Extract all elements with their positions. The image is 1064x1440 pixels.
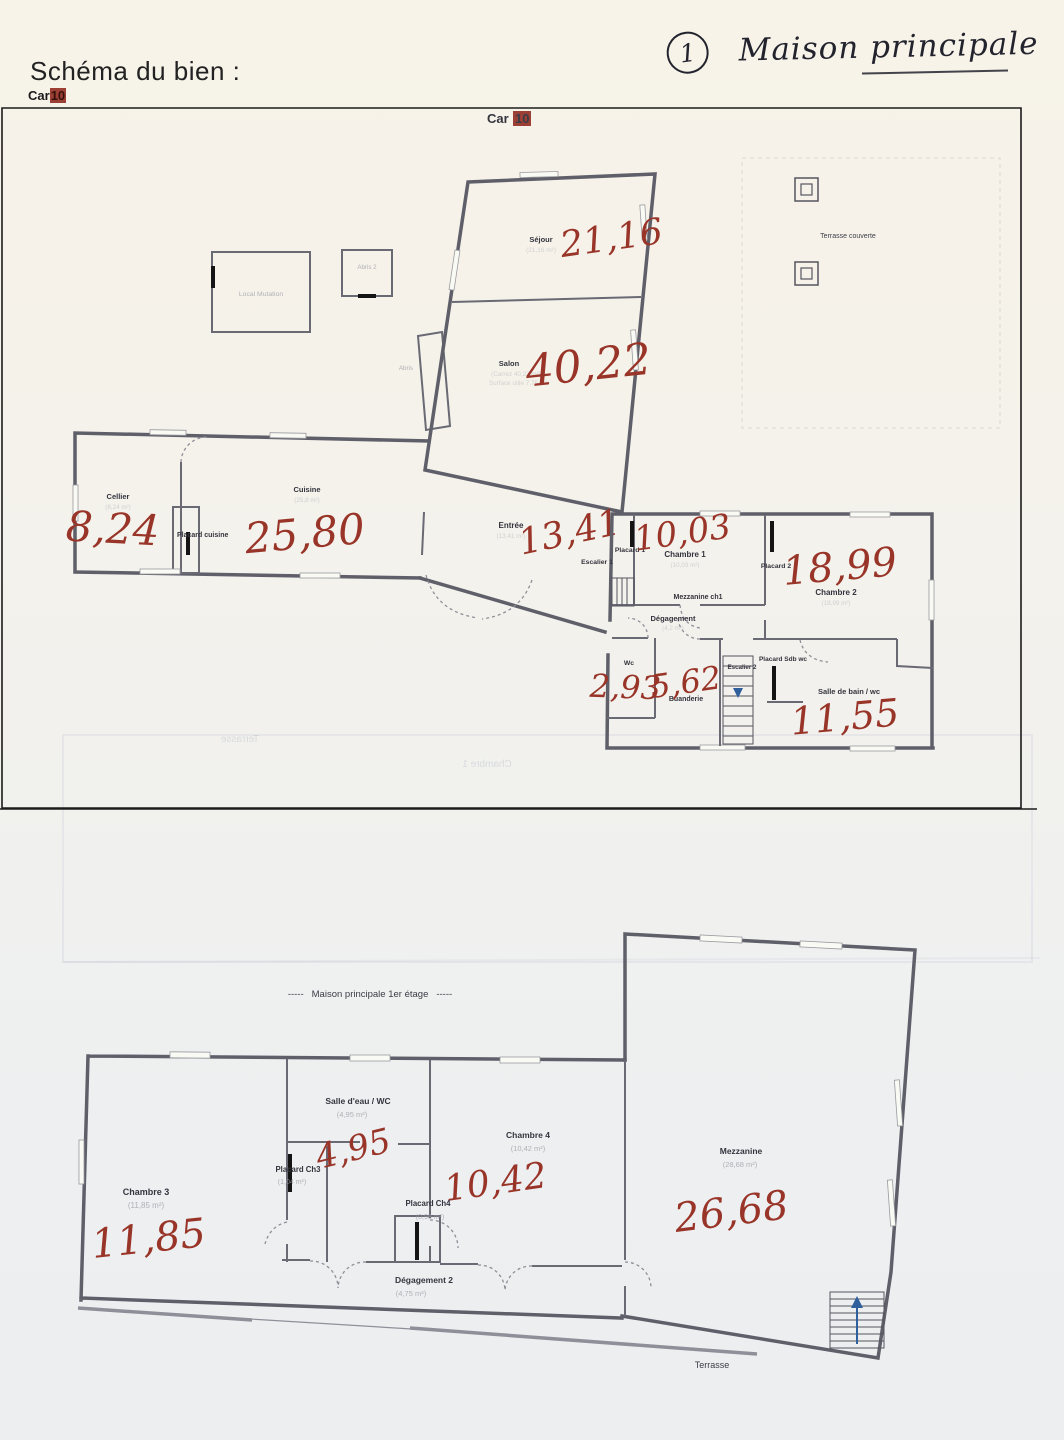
chambre4-area: (10,42 m²) [511, 1144, 546, 1153]
sejour-label: Séjour [529, 235, 552, 244]
caption-text: Maison principale 1er étage [312, 989, 429, 1000]
plan-header: Car 10 [487, 111, 531, 126]
sdb-hand-value: 11,55 [789, 690, 901, 743]
cellier-hand-value: 8,24 [65, 502, 161, 556]
chambre3-label: Chambre 3 [123, 1187, 170, 1197]
salle-eau-hand-value: 4,95 [311, 1121, 395, 1178]
wc-label: Wc [624, 660, 634, 667]
mezzanine-area: (28,68 m²) [723, 1160, 758, 1169]
abris-label: Abris [399, 365, 413, 372]
chambre4-hand-value: 10,42 [442, 1155, 550, 1210]
terrace-rail-outline [742, 158, 1000, 428]
entree-hand-value: 13,41 [515, 502, 624, 564]
placard-ch4-area: (0,98 m²) [416, 1214, 444, 1221]
walls-first-floor [78, 934, 915, 1358]
plan2-caption: -----Maison principale 1er étage----- [288, 989, 452, 1000]
local-label: Local Mutation [239, 291, 283, 298]
terrasse-label: Terrasse [695, 1360, 730, 1370]
chambre3-hand-value: 11,85 [89, 1210, 208, 1268]
sejour-area: (21,16 m²) [526, 247, 556, 254]
mezzanine-label: Mezzanine [720, 1146, 763, 1156]
mezzanine-ch1-label: Mezzanine ch1 [673, 594, 722, 601]
mezzanine-hand-value: 26,68 [671, 1182, 791, 1242]
cellier-label: Cellier [107, 492, 130, 501]
salon-label: Salon [499, 359, 520, 368]
outbuilding-local: Local Mutation [212, 252, 310, 332]
stairs-up-arrow [851, 1296, 863, 1308]
placard-ch3-label: Placard Ch3 [275, 1165, 321, 1174]
plan-first-floor: -----Maison principale 1er étage----- [0, 930, 1064, 1410]
abris2-label: Abris 2 [357, 264, 377, 271]
terrace-pillars [795, 178, 818, 285]
degagement-area: (4,2 m²) [662, 625, 684, 632]
chambre2-hand-value: 18,99 [781, 539, 899, 595]
caption-dashes-left: ----- [288, 989, 304, 1000]
salle-eau-area: (4,95 m²) [337, 1110, 368, 1119]
escalier2-label: Escalier 2 [728, 664, 757, 671]
plan-ground-floor: Car 10 Terrasse couverte Local Mutation … [0, 100, 1064, 815]
plan-header-prefix: Car [487, 111, 509, 126]
plan-header-number: 10 [515, 111, 529, 126]
salle-eau-label: Salle d'eau / WC [325, 1096, 390, 1106]
chambre3-area: (11,85 m²) [128, 1201, 165, 1210]
placard-ch4-label: Placard Ch4 [405, 1199, 451, 1208]
chambre1-area: (10,03 m²) [670, 562, 699, 569]
degagement-label: Dégagement [650, 614, 696, 623]
placard-cuisine-label: Placard cuisine [177, 532, 228, 539]
cuisine-hand-value: 25,80 [242, 504, 367, 563]
terrasse-couverte-label: Terrasse couverte [820, 233, 876, 240]
degagement2-area: (4,75 m²) [396, 1289, 427, 1298]
placard-ch3-area: (1,04 m²) [278, 1179, 306, 1186]
escalier1-label: Escalier 1 [581, 559, 613, 566]
caption-dashes-right: ----- [436, 989, 452, 1000]
cuisine-label: Cuisine [293, 485, 320, 494]
cuisine-area: (25,8 m²) [294, 497, 320, 504]
degagement2-label: Dégagement 2 [395, 1275, 453, 1285]
scanned-floorplan-page: Terrasse Chambre 1 Schéma du bien : Car1… [0, 0, 1064, 1440]
chambre4-label: Chambre 4 [506, 1130, 550, 1140]
buanderie-hand-value: 5,62 [648, 658, 724, 706]
chambre2-area: (18,99 m²) [821, 600, 850, 607]
outbuilding-abris2: Abris 2 [342, 250, 392, 296]
placard-sdb-label: Placard Sdb wc [759, 656, 807, 663]
sejour-hand-value: 21,16 [557, 211, 666, 266]
